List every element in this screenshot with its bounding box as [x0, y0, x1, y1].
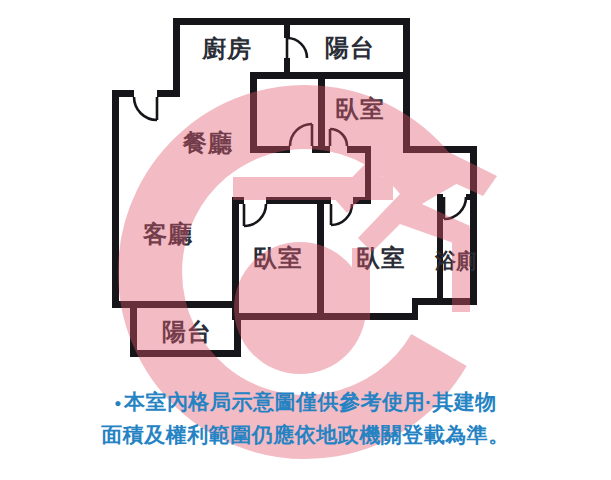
- disclaimer-text: ●本室內格局示意圖僅供參考使用·其建物 面積及權利範圍仍應依地政機關登載為準。: [0, 386, 611, 450]
- disclaimer-line-1: ●本室內格局示意圖僅供參考使用·其建物: [0, 386, 611, 419]
- room-label-bathroom: 浴廁: [435, 250, 477, 271]
- walls: [112, 18, 477, 357]
- disclaimer-line-2: 面積及權利範圍仍應依地政機關登載為準。: [0, 419, 611, 450]
- room-label-kitchen: 廚房: [202, 37, 252, 61]
- room-label-bedroom-right: 臥室: [356, 246, 406, 270]
- room-label-living: 客廳: [143, 222, 193, 246]
- bullet-icon: ●: [114, 396, 122, 410]
- floor-plan-page: 廚房 陽台 臥室 餐廳 客廳 臥室 臥室 浴廁 陽台 ●本室內格局示意圖僅供參考…: [0, 0, 611, 480]
- room-label-balcony-bottom: 陽台: [162, 320, 212, 344]
- room-label-bedroom-center: 臥室: [253, 246, 303, 270]
- room-label-balcony-top: 陽台: [325, 36, 375, 60]
- room-label-bedroom-top: 臥室: [335, 97, 385, 121]
- room-label-dining: 餐廳: [183, 131, 233, 155]
